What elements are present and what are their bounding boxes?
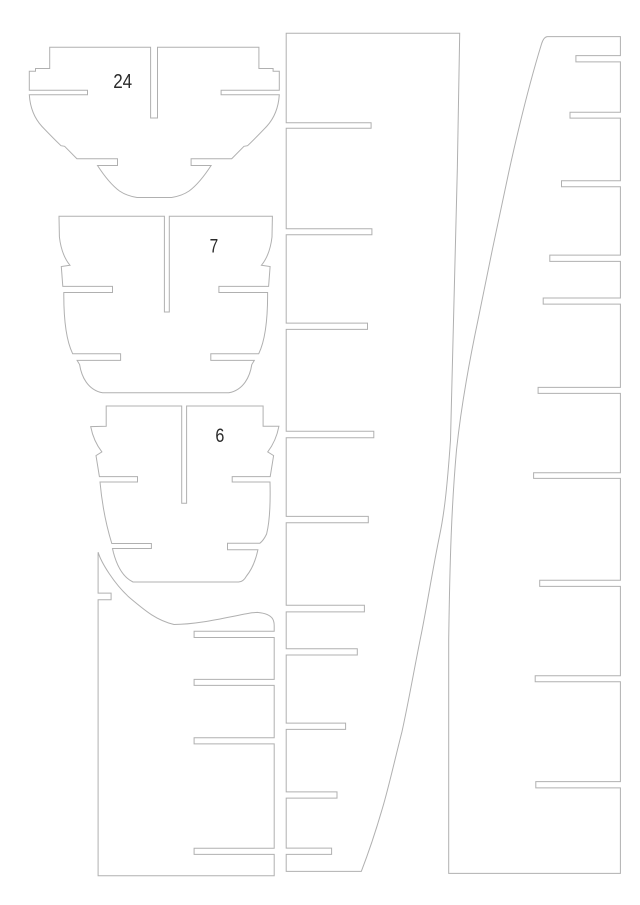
svg-text:24: 24 bbox=[113, 70, 132, 93]
svg-text:6: 6 bbox=[215, 425, 224, 447]
svg-text:7: 7 bbox=[210, 237, 219, 258]
